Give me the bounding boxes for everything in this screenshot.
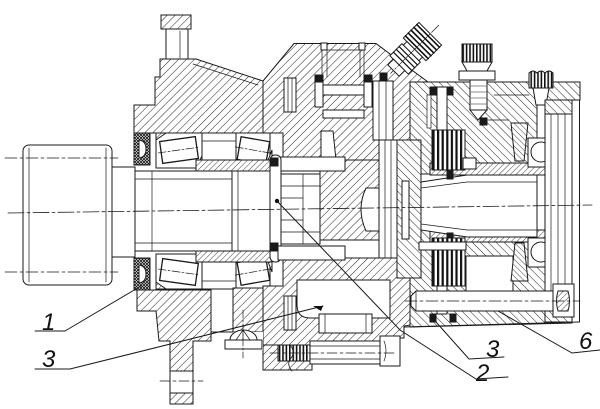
svg-text:1: 1 <box>42 309 55 336</box>
svg-text:2: 2 <box>475 360 489 387</box>
svg-text:3: 3 <box>486 336 500 363</box>
